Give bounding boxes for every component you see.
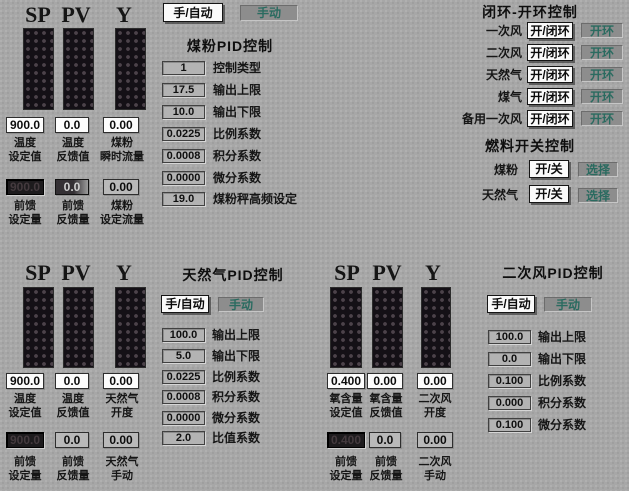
coal-scale-freq-field[interactable]: 19.0 (162, 192, 205, 206)
coal-y-header: Y (104, 3, 144, 27)
gas-d-gain-field[interactable]: 0.0000 (162, 411, 205, 425)
coal-y-value-field: 0.00 (103, 117, 139, 133)
gas-y-bargraph (115, 287, 146, 368)
fuel-row-coal-status[interactable]: 选择 (578, 162, 618, 177)
air-d-gain-label: 微分系数 (538, 418, 626, 432)
coal-p-gain-field[interactable]: 0.0225 (162, 127, 205, 141)
coal-output-low-field[interactable]: 10.0 (162, 105, 205, 119)
gas-mode-indicator[interactable]: 手动 (218, 297, 264, 312)
gas-y-value-field: 0.00 (103, 373, 139, 389)
gas-sp-value-field[interactable]: 900.0 (6, 373, 44, 389)
air-sp-value-field[interactable]: 0.400 (327, 373, 365, 389)
coal-pv-label: 温度反馈值 (50, 136, 96, 164)
gas-p-gain-field[interactable]: 0.0225 (162, 370, 205, 384)
coal-pv-header: PV (56, 3, 96, 27)
air-ff-setpoint-field[interactable]: 0.400 (327, 432, 365, 448)
coal-i-gain-field[interactable]: 0.0008 (162, 149, 205, 163)
air-output-high-label: 输出上限 (538, 330, 626, 344)
coal-bar-panel: SP PV Y 900.0 0.0 0.00 温度设定值 温度反馈值 煤粉瞬时流… (0, 0, 160, 235)
air-y-header: Y (413, 261, 453, 285)
gas-manual-label: 天然气手动 (94, 455, 150, 483)
gas-ff-set-label: 前馈设定量 (2, 455, 48, 483)
gas-y-label: 天然气开度 (94, 392, 150, 420)
coal-flow-setpoint-field[interactable]: 0.00 (103, 179, 139, 195)
gas-pv-bargraph (63, 287, 94, 368)
coal-output-low-label: 输出下限 (213, 105, 321, 119)
gas-pid-title: 天然气PID控制 (168, 265, 298, 285)
air-output-high-field[interactable]: 100.0 (488, 330, 531, 344)
loop-row-coal-gas-button[interactable]: 开/闭环 (527, 88, 573, 105)
loop-row-secondary-air-status[interactable]: 开环 (581, 45, 623, 60)
air-y-bargraph (421, 287, 451, 368)
gas-manual-field[interactable]: 0.00 (103, 432, 139, 448)
loop-row-secondary-air-label: 二次风 (438, 46, 522, 61)
air-i-gain-label: 积分系数 (538, 396, 626, 410)
gas-i-gain-field[interactable]: 0.0008 (162, 390, 205, 404)
air-ff-fb-label: 前馈反馈量 (362, 455, 410, 483)
air-pid-panel: 二次风PID控制 手/自动 手动 100.0 输出上限 0.0 输出下限 0.1… (470, 255, 629, 491)
gas-sp-bargraph (23, 287, 54, 368)
gas-pv-label: 温度反馈值 (50, 392, 96, 420)
coal-ff-fb-label: 前馈反馈量 (50, 199, 96, 227)
air-y-value-field: 0.00 (417, 373, 453, 389)
gas-y-header: Y (104, 261, 144, 285)
gas-sp-label: 温度设定值 (2, 392, 48, 420)
air-pv-header: PV (367, 261, 407, 285)
coal-control-type-label: 控制类型 (213, 61, 321, 75)
coal-flow-set-label: 煤粉设定流量 (94, 199, 150, 227)
coal-ff-set-label: 前馈设定量 (2, 199, 48, 227)
coal-pv-bargraph (63, 28, 94, 110)
air-bar-panel: SP PV Y 0.400 0.00 0.00 氧含量设定值 氧含量反馈值 二次… (325, 255, 470, 491)
fuel-row-gas-status[interactable]: 选择 (578, 188, 618, 203)
loop-row-primary-air-label: 一次风 (438, 24, 522, 39)
gas-ff-setpoint-field[interactable]: 900.0 (6, 432, 44, 448)
gas-p-gain-label: 比例系数 (212, 370, 320, 384)
air-ff-feedback-field: 0.0 (369, 432, 401, 448)
gas-output-low-label: 输出下限 (212, 349, 320, 363)
loop-row-primary-air-status[interactable]: 开环 (581, 23, 623, 38)
coal-manual-auto-button[interactable]: 手/自动 (163, 3, 223, 22)
air-sp-bargraph (330, 287, 362, 368)
gas-output-high-label: 输出上限 (212, 328, 320, 342)
coal-i-gain-label: 积分系数 (213, 149, 321, 163)
gas-ff-feedback-field: 0.0 (55, 432, 89, 448)
loop-row-backup-air-label: 备用一次风 (438, 112, 522, 127)
gas-output-high-field[interactable]: 100.0 (162, 328, 205, 342)
coal-sp-bargraph (23, 28, 54, 110)
air-pid-title: 二次风PID控制 (488, 263, 618, 283)
coal-mode-indicator[interactable]: 手动 (240, 5, 298, 21)
gas-ff-fb-label: 前馈反馈量 (50, 455, 96, 483)
coal-pid-panel: 手/自动 手动 煤粉PID控制 1 控制类型 17.5 输出上限 10.0 输出… (160, 0, 325, 235)
loop-row-natural-gas-status[interactable]: 开环 (581, 67, 623, 82)
loop-row-coal-gas-label: 煤气 (438, 90, 522, 105)
coal-control-type-field[interactable]: 1 (162, 61, 205, 75)
fuel-row-gas-button[interactable]: 开/关 (529, 185, 569, 203)
fuel-row-coal-label: 煤粉 (450, 163, 518, 178)
fuel-switch-title: 燃料开关控制 (455, 136, 605, 156)
loop-panel-title: 闭环-开环控制 (450, 2, 610, 22)
air-d-gain-field[interactable]: 0.100 (488, 418, 531, 432)
gas-i-gain-label: 积分系数 (212, 390, 320, 404)
gas-d-gain-label: 微分系数 (212, 411, 320, 425)
air-pv-bargraph (372, 287, 403, 368)
coal-y-label: 煤粉瞬时流量 (94, 136, 150, 164)
loop-row-primary-air-button[interactable]: 开/闭环 (527, 22, 573, 39)
loop-row-natural-gas-button[interactable]: 开/闭环 (527, 66, 573, 83)
hmi-screen: SP PV Y 900.0 0.0 0.00 温度设定值 温度反馈值 煤粉瞬时流… (0, 0, 629, 491)
loop-row-natural-gas-label: 天然气 (438, 68, 522, 83)
gas-bar-panel: SP PV Y 900.0 0.0 0.00 温度设定值 温度反馈值 天然气开度… (0, 255, 160, 491)
gas-pid-panel: 天然气PID控制 手/自动 手动 100.0 输出上限 5.0 输出下限 0.0… (160, 255, 325, 491)
loop-row-backup-air-status[interactable]: 开环 (581, 111, 623, 126)
coal-sp-label: 温度设定值 (2, 136, 48, 164)
air-p-gain-field[interactable]: 0.100 (488, 374, 531, 388)
coal-output-high-label: 输出上限 (213, 83, 321, 97)
air-sp-header: SP (327, 261, 367, 285)
coal-output-high-field[interactable]: 17.5 (162, 83, 205, 97)
air-output-low-label: 输出下限 (538, 352, 626, 366)
gas-manual-auto-button[interactable]: 手/自动 (161, 295, 209, 313)
gas-pv-value-field: 0.0 (55, 373, 89, 389)
coal-scale-freq-label: 煤粉秤高频设定 (213, 192, 323, 206)
loop-control-panel: 闭环-开环控制 一次风 开/闭环 开环 二次风 开/闭环 开环 天然气 开/闭环… (430, 0, 629, 235)
coal-pid-title: 煤粉PID控制 (170, 36, 290, 56)
air-pv-value-field: 0.00 (367, 373, 403, 389)
air-pv-label: 氧含量反馈值 (362, 392, 410, 420)
air-manual-label: 二次风手动 (410, 455, 460, 483)
loop-row-backup-air-button[interactable]: 开/闭环 (527, 110, 573, 127)
air-manual-field[interactable]: 0.00 (417, 432, 453, 448)
coal-sp-header: SP (18, 3, 58, 27)
loop-row-coal-gas-status[interactable]: 开环 (581, 89, 623, 104)
gas-ratio-label: 比值系数 (212, 431, 320, 445)
coal-d-gain-field[interactable]: 0.0000 (162, 171, 205, 185)
gas-ratio-field[interactable]: 2.0 (162, 431, 205, 445)
coal-ff-feedback-field: 0.0 (55, 179, 89, 195)
fuel-row-coal-button[interactable]: 开/关 (529, 160, 569, 178)
gas-sp-header: SP (18, 261, 58, 285)
air-mode-indicator[interactable]: 手动 (544, 297, 592, 312)
air-i-gain-field[interactable]: 0.000 (488, 396, 531, 410)
air-p-gain-label: 比例系数 (538, 374, 626, 388)
coal-sp-value-field[interactable]: 900.0 (6, 117, 44, 133)
coal-p-gain-label: 比例系数 (213, 127, 321, 141)
air-manual-auto-button[interactable]: 手/自动 (487, 295, 535, 313)
coal-ff-setpoint-field[interactable]: 900.0 (6, 179, 44, 195)
coal-d-gain-label: 微分系数 (213, 171, 321, 185)
gas-pv-header: PV (56, 261, 96, 285)
gas-output-low-field[interactable]: 5.0 (162, 349, 205, 363)
coal-y-bargraph (115, 28, 146, 110)
air-y-label: 二次风开度 (410, 392, 460, 420)
loop-row-secondary-air-button[interactable]: 开/闭环 (527, 44, 573, 61)
fuel-row-gas-label: 天然气 (450, 188, 518, 203)
coal-pv-value-field: 0.0 (55, 117, 89, 133)
air-output-low-field[interactable]: 0.0 (488, 352, 531, 366)
